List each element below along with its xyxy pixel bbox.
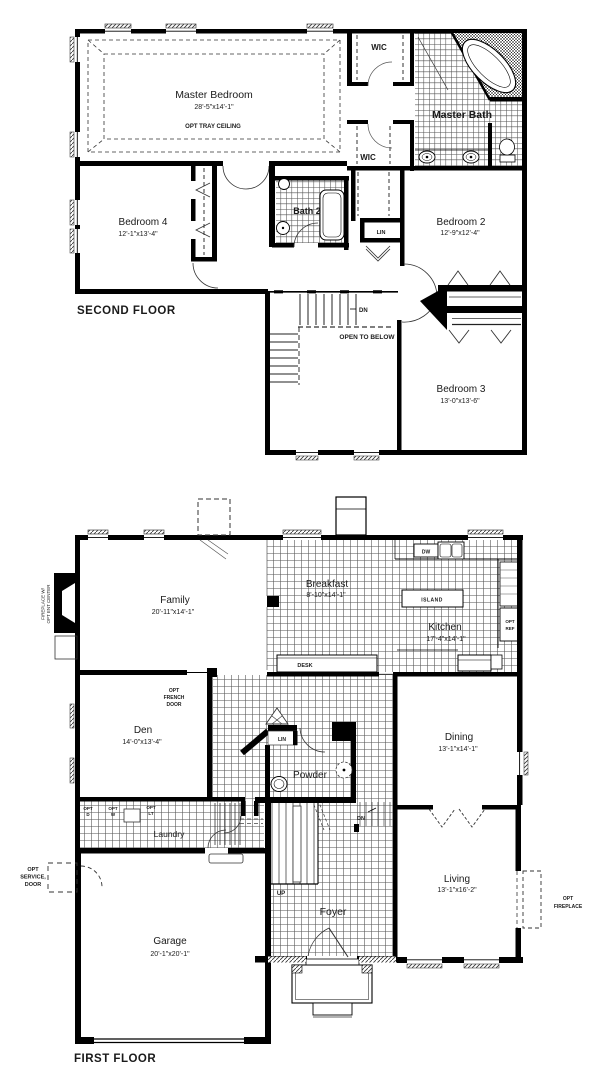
svg-text:14'-0"x13'-4": 14'-0"x13'-4" <box>122 739 162 746</box>
svg-text:Family: Family <box>160 595 189 606</box>
svg-text:OPEN TO BELOW: OPEN TO BELOW <box>339 334 395 341</box>
svg-text:13'-1"x14'-1": 13'-1"x14'-1" <box>438 746 478 753</box>
svg-text:Breakfast: Breakfast <box>306 579 348 590</box>
svg-text:DN: DN <box>357 816 365 822</box>
svg-text:FIREPLACE W/: FIREPLACE W/ <box>41 587 46 620</box>
svg-text:Bedroom 3: Bedroom 3 <box>437 384 486 395</box>
svg-text:OPT ENT CENTER: OPT ENT CENTER <box>46 584 51 624</box>
svg-text:OPT: OPT <box>83 806 93 811</box>
svg-text:ISLAND: ISLAND <box>421 598 443 604</box>
svg-text:DOOR: DOOR <box>167 702 182 708</box>
svg-text:WIC: WIC <box>360 153 376 162</box>
svg-text:Bath 2: Bath 2 <box>293 206 321 216</box>
svg-text:20'-11"x14'-1": 20'-11"x14'-1" <box>152 609 195 616</box>
svg-text:LIN: LIN <box>377 230 386 236</box>
svg-text:OPT: OPT <box>563 896 573 902</box>
svg-text:DN: DN <box>359 308 368 314</box>
svg-text:Bedroom 4: Bedroom 4 <box>119 217 168 228</box>
svg-text:Master Bath: Master Bath <box>432 109 492 121</box>
svg-text:OPT: OPT <box>169 688 179 694</box>
svg-text:OPT: OPT <box>146 805 156 810</box>
svg-text:SERVICE,: SERVICE, <box>20 875 46 881</box>
svg-text:OPT: OPT <box>27 867 39 873</box>
svg-text:LIN: LIN <box>278 737 286 743</box>
svg-text:Master Bedroom: Master Bedroom <box>175 89 253 101</box>
svg-text:13'-0"x13'-6": 13'-0"x13'-6" <box>440 398 480 405</box>
svg-text:Kitchen: Kitchen <box>428 622 461 633</box>
svg-text:12'-1"x13'-4": 12'-1"x13'-4" <box>118 231 158 238</box>
svg-text:UP: UP <box>277 891 285 897</box>
svg-text:13'-1"x16'-2": 13'-1"x16'-2" <box>437 887 477 894</box>
svg-text:FRENCH: FRENCH <box>164 695 185 701</box>
svg-text:DESK: DESK <box>297 663 312 669</box>
svg-text:DOOR: DOOR <box>25 882 42 888</box>
svg-text:OPT: OPT <box>108 806 118 811</box>
svg-text:FIREPLACE: FIREPLACE <box>554 904 583 910</box>
svg-text:17'-4"x14'-1": 17'-4"x14'-1" <box>426 636 466 643</box>
svg-text:8'-10"x14'-1": 8'-10"x14'-1" <box>306 592 346 599</box>
svg-text:OPT TRAY CEILING: OPT TRAY CEILING <box>185 124 241 130</box>
svg-text:20'-1"x20'-1": 20'-1"x20'-1" <box>150 951 190 958</box>
svg-text:Garage: Garage <box>153 936 187 947</box>
svg-text:Den: Den <box>134 725 152 736</box>
svg-text:OPT: OPT <box>505 619 515 624</box>
svg-text:Powder: Powder <box>293 770 328 781</box>
svg-text:REF: REF <box>506 626 515 631</box>
svg-text:WIC: WIC <box>371 43 387 52</box>
svg-text:FIRST FLOOR: FIRST FLOOR <box>74 1053 156 1065</box>
svg-text:Dining: Dining <box>445 732 473 743</box>
svg-text:Living: Living <box>444 874 470 885</box>
svg-text:SECOND FLOOR: SECOND FLOOR <box>77 305 176 317</box>
svg-text:12'-9"x12'-4": 12'-9"x12'-4" <box>440 230 480 237</box>
svg-text:Laundry: Laundry <box>154 829 185 839</box>
svg-text:LT: LT <box>148 811 153 816</box>
svg-text:Bedroom 2: Bedroom 2 <box>437 217 486 228</box>
svg-text:28'-5"x14'-1": 28'-5"x14'-1" <box>194 104 234 111</box>
svg-text:Foyer: Foyer <box>320 906 347 918</box>
svg-text:DW: DW <box>422 550 431 556</box>
